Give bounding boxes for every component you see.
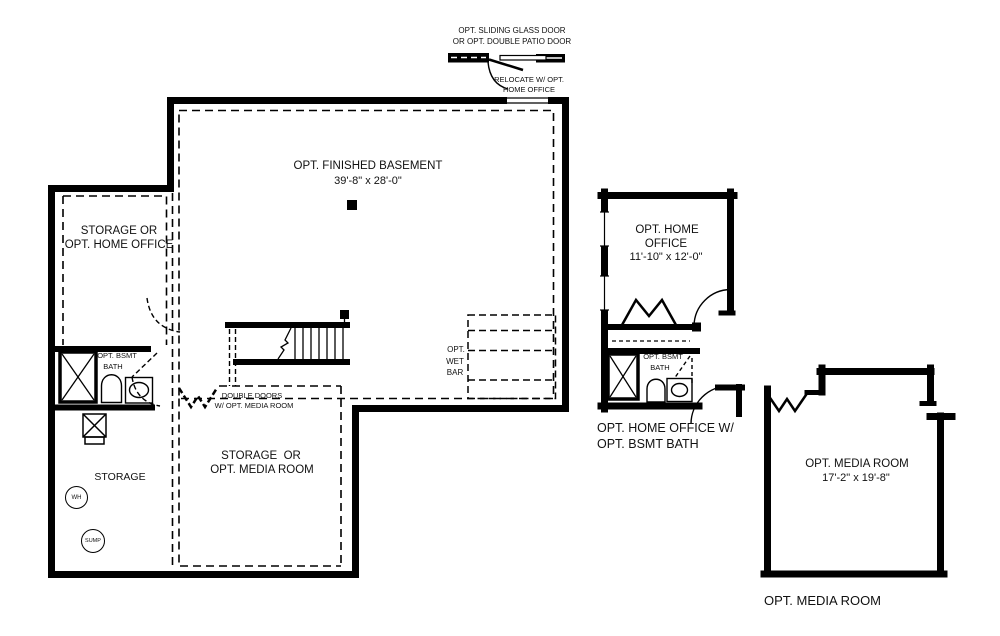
wet-bar-label-line3: BAR [447,369,463,378]
detail-bath-label-line2: BATH [650,364,669,372]
sliding-door-note-line1: OPT. SLIDING GLASS DOOR [458,27,565,36]
column-symbol [347,200,357,210]
home-office-room-dims: 11'-10" x 12'-0" [630,252,703,264]
bsmt-bath-label-line2: BATH [103,363,122,371]
double-doors-note-line1: DOUBLE DOORS [222,392,282,400]
sump-pump-symbol: SUMP [81,529,105,553]
detail-bath-label-line1: OPT. BSMT [643,353,683,361]
relocate-note-line1: RELOCATE W/ OPT. [494,76,564,84]
storage-media-room-label-line2: OPT. MEDIA ROOM [210,464,314,476]
office-double-doors [622,300,676,325]
mechanical-unit-symbol [83,414,106,444]
finished-basement-dims: 39'-8" x 28'-0" [334,176,402,188]
sump-pump-label: SUMP [85,538,101,544]
home-office-caption-line2: OPT. BSMT BATH [597,438,699,452]
media-room-double-doors [179,388,217,407]
media-room-dims: 17'-2" x 19'-8" [822,473,890,485]
water-heater-symbol: WH [65,486,88,509]
wet-bar-counter [468,315,556,399]
home-office-room-label-line2: OFFICE [645,238,687,250]
storage-home-office-label-line2: OPT. HOME OFFICE [65,239,174,251]
water-heater-label: WH [72,495,82,501]
sliding-door-note-line2: OR OPT. DOUBLE PATIO DOOR [453,38,571,47]
stairs [228,310,349,362]
bsmt-bath-label-line1: OPT. BSMT [97,352,137,360]
relocate-note-line2: HOME OFFICE [503,86,555,94]
wet-bar-label-line2: WET [446,358,464,367]
optional-dashed-walls [63,111,554,567]
storage-label: STORAGE [94,472,145,483]
media-room-detail-walls [764,368,952,574]
toilet-symbol [102,375,122,403]
storage-media-room-label-line1: STORAGE OR [221,450,301,462]
finished-basement-label: OPT. FINISHED BASEMENT [294,160,443,172]
home-office-bath-fixtures [608,354,692,402]
toilet-symbol-2 [647,379,665,402]
patio-door-opening [507,96,548,106]
media-room-label: OPT. MEDIA ROOM [805,458,909,470]
wet-bar-label-line1: OPT. [447,346,465,355]
double-doors-note-line2: W/ OPT. MEDIA ROOM [215,402,294,410]
home-office-room-label-line1: OPT. HOME [635,224,698,236]
floorplan-drawing [0,0,1000,636]
media-room-entry-doors [766,392,808,411]
basement-floorplan: OPT. SLIDING GLASS DOOR OR OPT. DOUBLE P… [0,0,1000,636]
home-office-caption-line1: OPT. HOME OFFICE W/ [597,422,734,436]
media-room-caption: OPT. MEDIA ROOM [764,594,881,608]
storage-home-office-label-line1: STORAGE OR [81,225,157,237]
sink-symbol-2 [667,379,692,402]
stair-post [340,310,349,319]
